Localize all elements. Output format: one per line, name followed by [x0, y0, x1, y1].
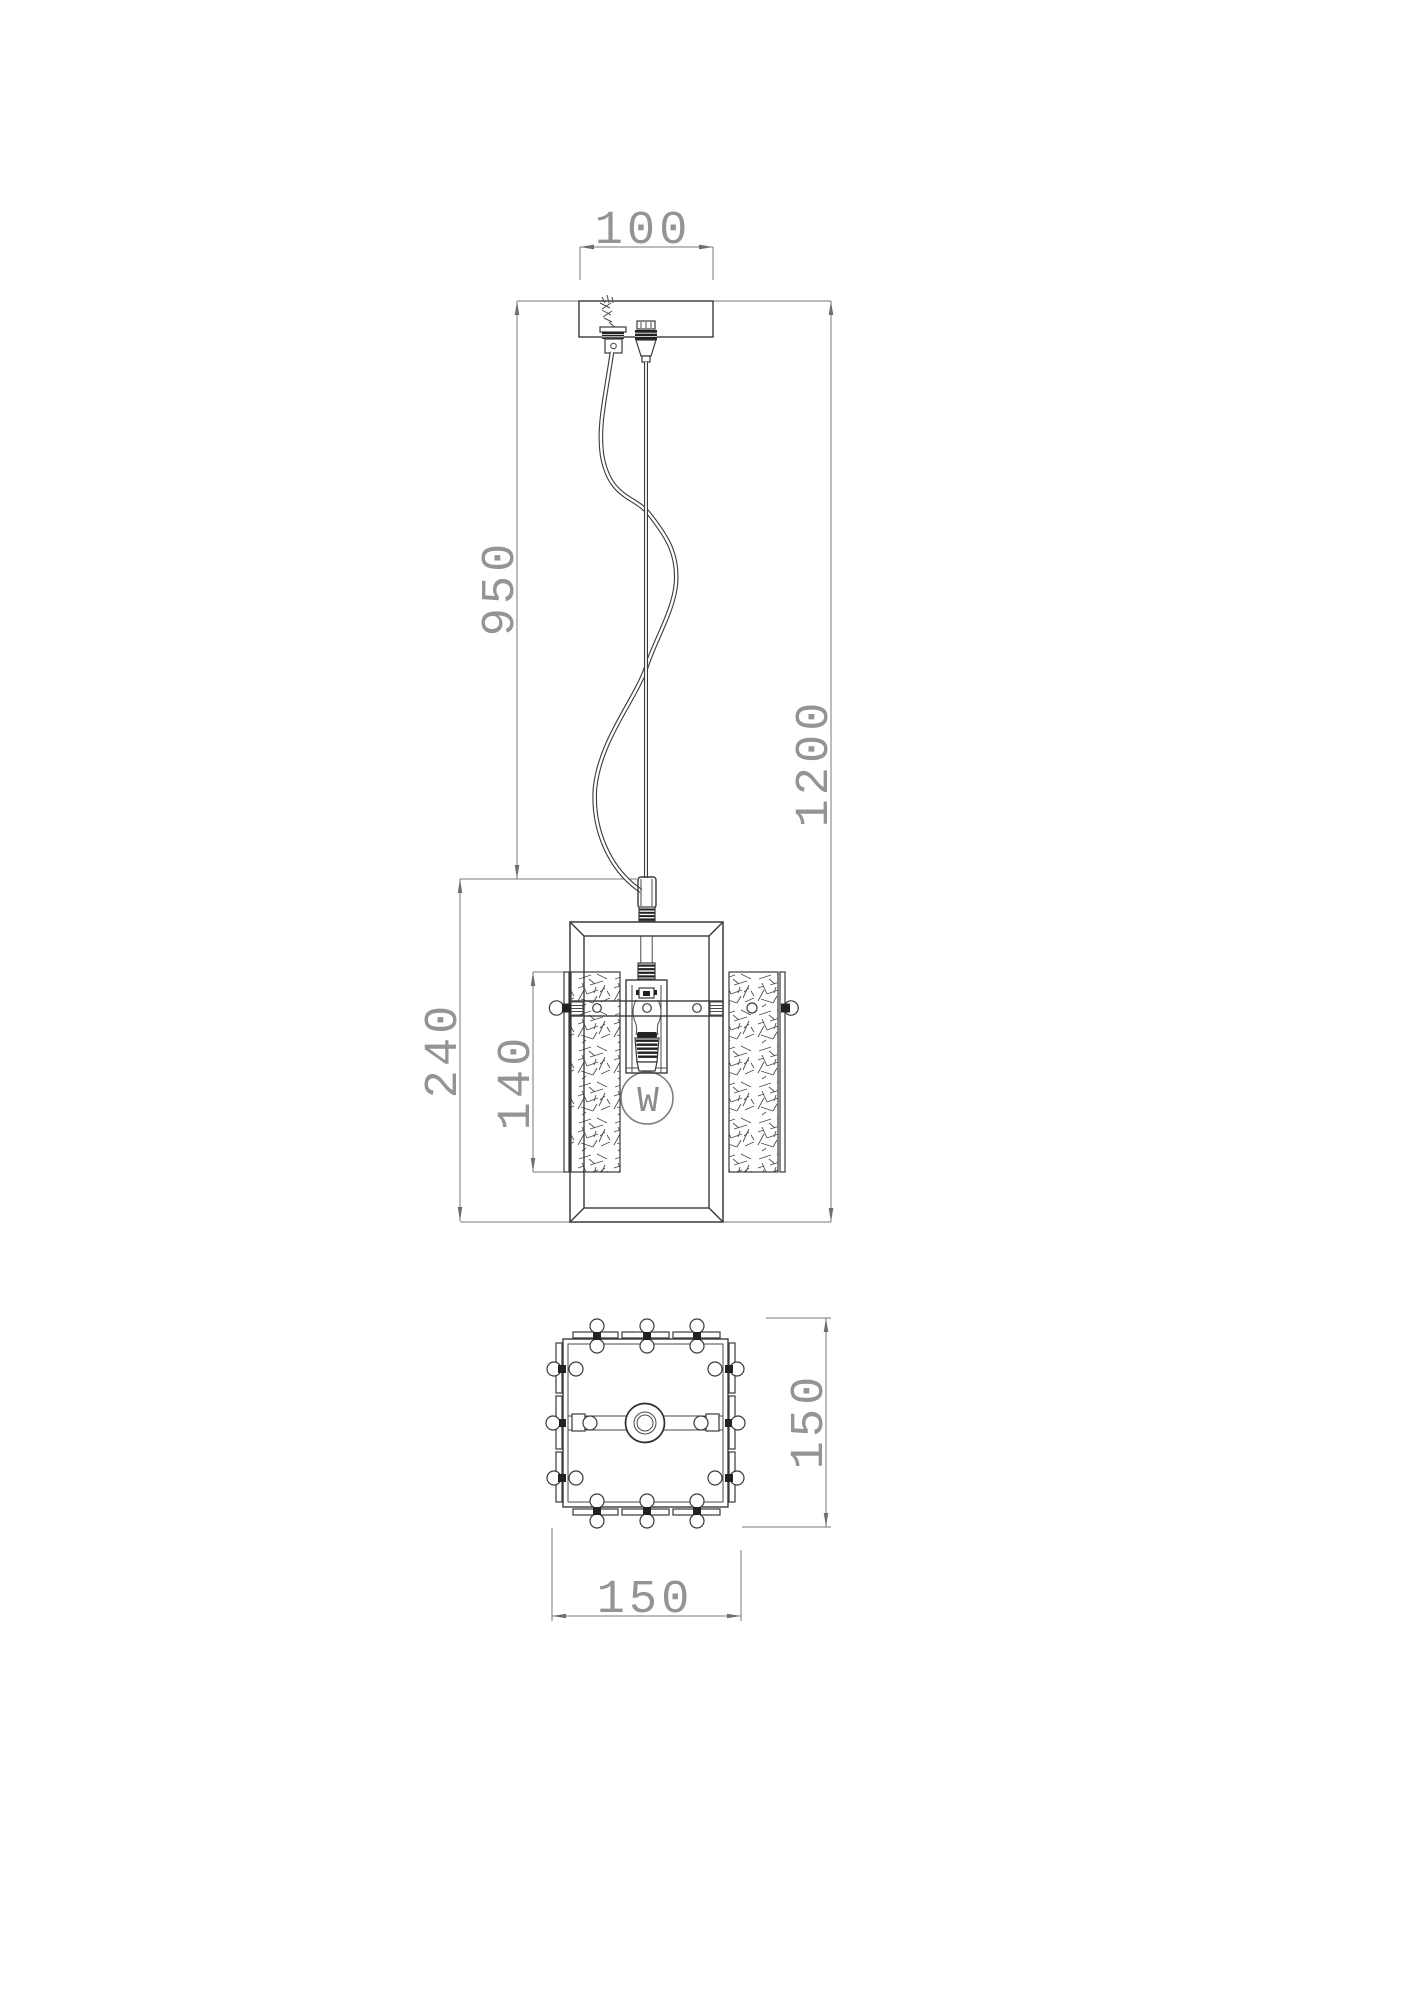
- bottom-view: [546, 1319, 745, 1528]
- dimension-cord-length: 950: [460, 301, 637, 879]
- thumb-screw: [547, 1471, 583, 1485]
- dim-body-height-label: 240: [418, 1002, 471, 1099]
- front-view: W: [549, 295, 798, 1222]
- dim-cord-length-label: 950: [475, 540, 528, 637]
- dimension-canopy-width: 100: [580, 205, 713, 280]
- thumb-screw: [547, 1362, 583, 1376]
- drawing-sheet: 100 950 1200 240 140: [0, 0, 1414, 2000]
- dimension-body-depth: 150: [742, 1318, 837, 1527]
- center-hub: [626, 1404, 665, 1443]
- thumb-screw: [708, 1362, 744, 1376]
- bulb-wattage-letter: W: [637, 1081, 659, 1122]
- technical-drawing: 100 950 1200 240 140: [0, 0, 1414, 2000]
- dim-body-depth-label: 150: [784, 1373, 837, 1470]
- bulb: W: [621, 1072, 673, 1124]
- thumb-screw: [708, 1471, 744, 1485]
- dim-overall-height-label: 1200: [789, 699, 842, 828]
- dim-body-width-label: 150: [597, 1574, 694, 1627]
- dim-canopy-width-label: 100: [595, 205, 692, 258]
- suspension-rod: [638, 936, 655, 979]
- cord-grip-fitting: [600, 327, 626, 353]
- lamp-socket: [635, 1032, 659, 1071]
- lamp-cord-grip: [638, 877, 656, 921]
- dimension-body-width: 150: [552, 1528, 741, 1627]
- panel-hole: [747, 1003, 757, 1013]
- cable-gland-fitting: [635, 321, 657, 362]
- power-cord: [595, 352, 677, 891]
- dim-glass-height-label: 140: [491, 1034, 544, 1131]
- glass-panel-right: [729, 972, 785, 1172]
